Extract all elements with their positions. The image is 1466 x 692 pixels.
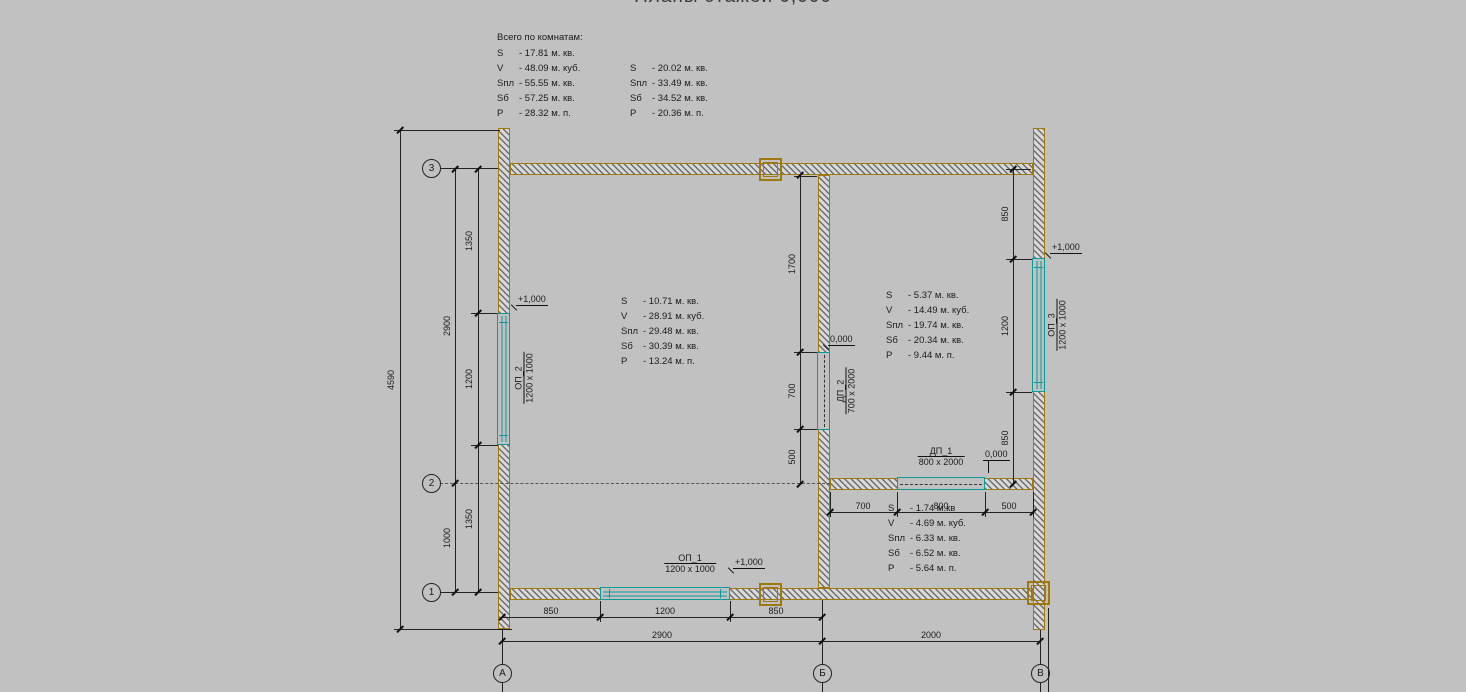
axis-v-leader-line [1040, 630, 1041, 664]
drawing-title: Планы этажей 0,000 [634, 0, 832, 8]
window-cap [1034, 382, 1043, 383]
dim-text: 1700 [787, 254, 797, 274]
summary-line: S- 17.81 м. кв. [497, 46, 580, 61]
extension-line [830, 492, 831, 517]
room-line: P- 9.44 м. п. [886, 348, 969, 363]
room-line: Sпл- 19.74 м. кв. [886, 318, 969, 333]
door-centerline [824, 355, 825, 427]
dim-text: 850 [768, 606, 783, 616]
axis-b-leader-line [822, 600, 823, 664]
room-key: P [888, 561, 910, 576]
room-line: Sпл- 6.33 м. кв. [888, 531, 966, 546]
room-value: - 28.91 м. куб. [643, 311, 704, 322]
summary-value: - 55.55 м. кв. [519, 78, 575, 89]
room-value: - 5.37 м. кв. [908, 290, 959, 301]
level-mark-plus1000: +1,000 [1050, 242, 1082, 254]
window-cap [1034, 267, 1043, 268]
dim-line-mid-inner [800, 175, 801, 484]
summary-heading: Всего по комнатам: [497, 30, 583, 45]
summary-line: Sб- 34.52 м. кв. [630, 91, 708, 106]
summary-key: S [497, 46, 519, 61]
axis-v-leader-line [1040, 682, 1041, 692]
room-key: S [888, 501, 910, 516]
room-value: - 13.24 м. п. [643, 356, 695, 367]
room-key: P [621, 354, 643, 369]
opening-size: 700 x 2000 [847, 368, 857, 415]
axis-a-leader-line [502, 682, 503, 692]
dim-line-left-inner [478, 169, 479, 592]
floor-plan-canvas: Планы этажей 0,000 Всего по комнатам: S-… [0, 0, 1466, 692]
window-cap [609, 589, 610, 598]
room-line: S- 10.71 м. кв. [621, 294, 704, 309]
opening-size: 800 x 2000 [918, 457, 965, 467]
level-mark-zero: 0,000 [983, 449, 1010, 461]
room-value: - 20.34 м. кв. [908, 335, 964, 346]
room-line: V- 14.49 м. куб. [886, 303, 969, 318]
summary-value: - 34.52 м. кв. [652, 93, 708, 104]
dim-text: 850 [543, 606, 558, 616]
dim-text: 1200 [1000, 316, 1010, 336]
axis-col-b: Б [813, 664, 832, 683]
summary-line: Sпл- 33.49 м. кв. [630, 76, 708, 91]
room-key: V [886, 303, 908, 318]
room-value: - 4.69 м. куб. [910, 518, 966, 529]
column-top [759, 158, 782, 181]
room-key: Sб [621, 339, 643, 354]
window-op3 [1032, 258, 1045, 392]
room-key: Sпл [886, 318, 908, 333]
room-line: Sб- 6.52 м. кв. [888, 546, 966, 561]
window-op1 [600, 587, 730, 600]
label-op3: ОП_3 1200 x 1000 [1047, 299, 1068, 351]
door-dp2 [817, 352, 830, 430]
dim-text: 2900 [652, 630, 672, 640]
room-line: V- 4.69 м. куб. [888, 516, 966, 531]
window-glazing-line [501, 316, 506, 442]
dim-text-total-height: 4590 [386, 370, 396, 390]
room-key: Sпл [888, 531, 910, 546]
axis-col-v: В [1031, 664, 1050, 683]
dim-tick [796, 480, 803, 487]
room-line: S- 1.74 м.кв [888, 501, 966, 516]
summary-line: P- 20.36 м. п. [630, 106, 708, 121]
extension-line [394, 629, 512, 630]
summary-value: - 20.36 м. п. [652, 108, 704, 119]
room-value: - 29.48 м. кв. [643, 326, 699, 337]
extension-line [1033, 492, 1034, 517]
extension-line [394, 130, 500, 131]
summary-line: Sпл- 55.55 м. кв. [497, 76, 580, 91]
axis-row-1: 1 [422, 583, 441, 602]
room-line: Sб- 30.39 м. кв. [621, 339, 704, 354]
axis-1-leader-line [440, 592, 498, 593]
label-op1: ОП_1 1200 x 1000 [664, 553, 716, 574]
axis-row-2: 2 [422, 474, 441, 493]
room-line: P- 5.64 м. п. [888, 561, 966, 576]
label-op2: ОП_2 1200 x 1000 [514, 352, 535, 404]
room-value: - 1.74 м.кв [910, 503, 955, 514]
extension-line [730, 601, 731, 622]
extension-line [985, 492, 986, 517]
room-2-stamp: S- 5.37 м. кв. V- 14.49 м. куб. Sпл- 19.… [886, 288, 969, 363]
opening-size: 1200 x 1000 [664, 564, 716, 574]
summary-value: - 28.32 м. п. [519, 108, 571, 119]
room-key: Sб [886, 333, 908, 348]
room-key: V [888, 516, 910, 531]
summary-key: Sпл [630, 76, 652, 91]
dim-text: 1350 [464, 509, 474, 529]
column-bottom [759, 583, 782, 606]
room-value: - 6.33 м. кв. [910, 533, 961, 544]
dim-line-left-mid [455, 169, 456, 592]
column-inner-outline [1031, 585, 1046, 601]
window-glazing-line [1036, 261, 1041, 389]
summary-line: S- 20.02 м. кв. [630, 61, 708, 76]
summary-value: - 20.02 м. кв. [652, 63, 708, 74]
axis-col-a: А [493, 664, 512, 683]
window-cap [499, 322, 508, 323]
room-line: P- 13.24 м. п. [621, 354, 704, 369]
summary-value: - 48.09 м. куб. [519, 63, 580, 74]
room-value: - 30.39 м. кв. [643, 341, 699, 352]
window-glazing-line [603, 591, 727, 596]
door-dp1 [897, 477, 985, 490]
opening-name: ДП_2 [836, 368, 847, 415]
dim-text: 2900 [442, 316, 452, 336]
summary-key: S [630, 61, 652, 76]
summary-left-column: S- 17.81 м. кв. V- 48.09 м. куб. Sпл- 55… [497, 46, 580, 121]
summary-value: - 17.81 м. кв. [519, 48, 575, 59]
room-key: S [886, 288, 908, 303]
dim-text: 1200 [655, 606, 675, 616]
summary-line: Sб- 57.25 м. кв. [497, 91, 580, 106]
window-cap [720, 589, 721, 598]
dim-line-bottom-inner [502, 617, 822, 618]
room-value: - 6.52 м. кв. [910, 548, 961, 559]
opening-name: ОП_3 [1047, 299, 1058, 351]
label-dp2: ДП_2 700 x 2000 [836, 368, 857, 415]
dim-text: 850 [1000, 430, 1010, 445]
room-line: Sпл- 29.48 м. кв. [621, 324, 704, 339]
summary-key: Sб [630, 91, 652, 106]
dim-text: 850 [1000, 206, 1010, 221]
room-value: - 14.49 м. куб. [908, 305, 969, 316]
room-key: Sб [888, 546, 910, 561]
rooms-summary-block: Всего по комнатам: [497, 30, 583, 45]
dim-text: 1000 [442, 528, 452, 548]
summary-key: P [630, 106, 652, 121]
room-line: V- 28.91 м. куб. [621, 309, 704, 324]
opening-name: ОП_1 [664, 553, 716, 564]
window-cap [499, 435, 508, 436]
opening-size: 1200 x 1000 [525, 352, 535, 404]
room-value: - 10.71 м. кв. [643, 296, 699, 307]
label-dp1: ДП_1 800 x 2000 [918, 446, 965, 467]
room-1-stamp: S- 10.71 м. кв. V- 28.91 м. куб. Sпл- 29… [621, 294, 704, 369]
dim-text: 500 [787, 449, 797, 464]
dim-line-total-height [400, 130, 401, 629]
room-value: - 19.74 м. кв. [908, 320, 964, 331]
summary-key: Sб [497, 91, 519, 106]
room-3-stamp: S- 1.74 м.кв V- 4.69 м. куб. Sпл- 6.33 м… [888, 501, 966, 576]
summary-value: - 57.25 м. кв. [519, 93, 575, 104]
opening-name: ОП_2 [514, 352, 525, 404]
dim-line-right-inner [1013, 169, 1014, 484]
axis-2-centerline [440, 483, 830, 484]
dim-text: 500 [1001, 501, 1016, 511]
room-key: P [886, 348, 908, 363]
extension-line [1048, 608, 1049, 692]
room-key: S [621, 294, 643, 309]
axis-a-leader-line [502, 629, 503, 664]
summary-value: - 33.49 м. кв. [652, 78, 708, 89]
summary-key: P [497, 106, 519, 121]
summary-right-column: S- 20.02 м. кв. Sпл- 33.49 м. кв. Sб- 34… [630, 61, 708, 121]
room-key: Sпл [621, 324, 643, 339]
axis-3-leader-line [440, 168, 498, 169]
room-value: - 5.64 м. п. [910, 563, 957, 574]
dim-text: 2000 [921, 630, 941, 640]
opening-size: 1200 x 1000 [1058, 299, 1068, 351]
room-value: - 9.44 м. п. [908, 350, 955, 361]
axis-row-3: 3 [422, 159, 441, 178]
column-inner-outline [763, 162, 778, 177]
window-op2 [497, 313, 510, 445]
level-mark-plus1000: +1,000 [733, 557, 765, 569]
door-centerline [900, 484, 982, 485]
dim-text: 1200 [464, 369, 474, 389]
room-key: V [621, 309, 643, 324]
dim-text: 700 [855, 501, 870, 511]
dim-line-bottom-axes [502, 641, 1040, 642]
room-line: Sб- 20.34 м. кв. [886, 333, 969, 348]
level-mark-plus1000: +1,000 [516, 294, 548, 306]
summary-key: V [497, 61, 519, 76]
extension-line [600, 601, 601, 622]
column-bottom-right [1027, 581, 1050, 605]
dim-text: 700 [787, 383, 797, 398]
summary-line: V- 48.09 м. куб. [497, 61, 580, 76]
summary-key: Sпл [497, 76, 519, 91]
summary-line: P- 28.32 м. п. [497, 106, 580, 121]
opening-name: ДП_1 [918, 446, 965, 457]
room-line: S- 5.37 м. кв. [886, 288, 969, 303]
dim-text: 1350 [464, 231, 474, 251]
column-inner-outline [763, 587, 778, 602]
level-mark-zero: 0,000 [828, 334, 855, 346]
axis-b-leader-line [822, 682, 823, 692]
